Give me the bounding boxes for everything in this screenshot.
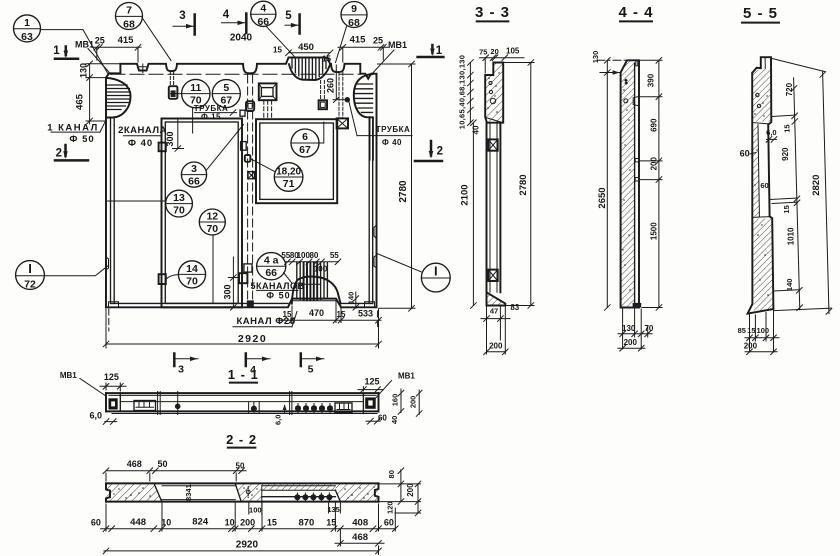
svg-text:2780: 2780 (398, 180, 409, 203)
svg-text:55: 55 (330, 251, 339, 260)
svg-text:130: 130 (591, 51, 600, 64)
svg-text:68: 68 (348, 17, 360, 29)
svg-text:Ф 15: Ф 15 (201, 113, 221, 122)
svg-text:200: 200 (489, 342, 503, 351)
svg-text:2920: 2920 (236, 540, 259, 551)
svg-text:15: 15 (322, 55, 331, 64)
svg-text:100: 100 (314, 265, 328, 274)
svg-text:140: 140 (785, 279, 794, 292)
svg-text:60: 60 (91, 517, 101, 527)
svg-text:15: 15 (337, 310, 346, 319)
svg-text:15: 15 (283, 310, 292, 319)
svg-text:11: 11 (190, 82, 201, 94)
svg-text:Ф 50: Ф 50 (266, 291, 290, 301)
svg-text:8341: 8341 (184, 484, 193, 501)
svg-text:6,0: 6,0 (90, 411, 103, 421)
svg-text:468: 468 (352, 532, 368, 543)
svg-text:533: 533 (358, 309, 373, 319)
svg-text:130: 130 (622, 324, 636, 333)
svg-text:5: 5 (223, 82, 229, 94)
svg-text:5: 5 (285, 10, 292, 22)
svg-text:50: 50 (157, 459, 167, 469)
svg-text:66: 66 (265, 267, 277, 279)
svg-text:3 - 3: 3 - 3 (475, 4, 510, 21)
svg-text:50: 50 (236, 461, 245, 470)
svg-text:МВ1: МВ1 (398, 372, 415, 381)
svg-text:72: 72 (24, 278, 36, 290)
svg-text:70: 70 (190, 94, 202, 106)
svg-text:448: 448 (130, 517, 146, 528)
svg-text:5: 5 (308, 364, 314, 376)
svg-text:125: 125 (104, 372, 119, 382)
svg-text:2: 2 (437, 145, 443, 157)
svg-text:200: 200 (240, 517, 255, 527)
svg-text:105: 105 (506, 47, 520, 56)
svg-text:470: 470 (309, 308, 324, 318)
svg-text:15: 15 (782, 205, 791, 213)
svg-text:2100: 2100 (460, 184, 471, 205)
svg-text:80: 80 (309, 251, 318, 260)
svg-text:60: 60 (760, 181, 768, 190)
svg-text:140: 140 (347, 292, 356, 305)
svg-text:690: 690 (650, 118, 659, 132)
svg-text:20: 20 (490, 47, 498, 56)
svg-text:120: 120 (386, 501, 395, 514)
svg-text:200: 200 (406, 483, 415, 497)
svg-text:70: 70 (173, 205, 185, 217)
svg-text:12: 12 (206, 210, 218, 222)
svg-text:10: 10 (225, 517, 235, 527)
svg-text:100: 100 (249, 505, 262, 514)
svg-text:75: 75 (479, 47, 487, 56)
svg-text:3: 3 (179, 10, 185, 22)
svg-text:100: 100 (297, 251, 311, 260)
svg-text:10,65,40,68,130,130: 10,65,40,68,130,130 (458, 55, 467, 130)
svg-text:Ф 50: Ф 50 (69, 134, 94, 145)
svg-text:5 - 5: 5 - 5 (743, 5, 778, 22)
svg-text:4: 4 (260, 2, 266, 14)
svg-text:1 - 1: 1 - 1 (228, 367, 259, 382)
svg-text:85: 85 (738, 326, 746, 335)
svg-text:I: I (28, 261, 32, 276)
svg-text:4: 4 (223, 9, 230, 21)
svg-text:10: 10 (161, 517, 171, 527)
svg-text:70: 70 (644, 324, 653, 333)
svg-text:3: 3 (191, 163, 197, 175)
svg-text:4 - 4: 4 - 4 (618, 4, 653, 21)
svg-text:468: 468 (127, 459, 142, 469)
svg-text:6: 6 (302, 131, 308, 143)
svg-text:5КАНАЛОВ: 5КАНАЛОВ (251, 281, 305, 291)
svg-text:9: 9 (351, 3, 357, 15)
svg-text:15: 15 (326, 517, 336, 527)
svg-text:15: 15 (783, 124, 792, 132)
svg-text:2 - 2: 2 - 2 (226, 432, 257, 447)
svg-text:68: 68 (123, 18, 135, 30)
svg-text:ТРУБКА: ТРУБКА (376, 125, 411, 134)
svg-text:63: 63 (21, 31, 33, 43)
svg-text:МВ1: МВ1 (388, 40, 407, 50)
svg-text:390: 390 (647, 73, 656, 87)
svg-text:2780: 2780 (518, 174, 529, 195)
svg-text:125: 125 (364, 377, 379, 387)
svg-text:70: 70 (206, 223, 218, 235)
svg-text:135: 135 (327, 505, 340, 514)
svg-text:2: 2 (56, 147, 62, 159)
svg-text:66: 66 (257, 16, 269, 28)
svg-text:15: 15 (267, 517, 277, 527)
svg-text:60: 60 (384, 517, 394, 527)
svg-text:1010: 1010 (786, 227, 795, 245)
svg-text:870: 870 (298, 517, 314, 528)
svg-text:80: 80 (387, 470, 396, 478)
svg-text:14: 14 (186, 263, 198, 275)
svg-text:6,0: 6,0 (274, 415, 283, 425)
svg-text:6,0: 6,0 (766, 128, 776, 137)
svg-text:2040: 2040 (230, 33, 253, 44)
svg-text:100: 100 (757, 326, 770, 335)
svg-text:1500: 1500 (650, 222, 659, 240)
svg-text:60: 60 (740, 149, 750, 159)
svg-text:15: 15 (273, 46, 282, 55)
svg-text:408: 408 (352, 517, 368, 528)
svg-text:2920: 2920 (238, 333, 267, 345)
svg-text:66: 66 (188, 176, 200, 188)
svg-text:70: 70 (186, 275, 198, 287)
svg-text:824: 824 (192, 516, 209, 527)
svg-text:40: 40 (390, 416, 399, 424)
svg-text:200: 200 (408, 396, 417, 409)
svg-text:47: 47 (490, 307, 498, 316)
svg-text:450: 450 (298, 42, 314, 53)
svg-text:200: 200 (650, 156, 659, 170)
svg-text:160: 160 (390, 394, 399, 407)
svg-text:4 а: 4 а (264, 255, 279, 267)
svg-text:18,20: 18,20 (276, 166, 301, 177)
svg-text:25: 25 (95, 36, 105, 46)
svg-text:415: 415 (350, 34, 367, 45)
svg-text:71: 71 (283, 178, 295, 190)
svg-text:25: 25 (373, 35, 383, 45)
svg-text:1: 1 (53, 45, 60, 57)
svg-text:465: 465 (75, 93, 86, 110)
svg-text:200: 200 (744, 341, 758, 350)
svg-text:1: 1 (24, 17, 30, 29)
svg-text:83: 83 (510, 303, 519, 312)
svg-text:2КАНАЛА: 2КАНАЛА (118, 125, 167, 136)
svg-text:1: 1 (436, 45, 443, 57)
svg-text:3: 3 (178, 364, 184, 376)
svg-text:920: 920 (781, 147, 790, 161)
svg-text:15: 15 (747, 326, 755, 335)
svg-text:13: 13 (173, 192, 185, 204)
svg-text:130: 130 (79, 63, 89, 78)
svg-text:300: 300 (223, 284, 233, 299)
svg-text:7: 7 (126, 4, 132, 16)
svg-text:720: 720 (785, 82, 794, 96)
svg-text:Ф 40: Ф 40 (128, 138, 153, 149)
svg-text:67: 67 (299, 144, 311, 156)
svg-text:260: 260 (326, 78, 336, 93)
svg-text:I: I (434, 264, 438, 279)
svg-text:Ф 40: Ф 40 (382, 138, 402, 147)
svg-text:415: 415 (118, 35, 135, 46)
svg-text:2650: 2650 (597, 187, 608, 208)
svg-text:МВ1: МВ1 (60, 371, 77, 380)
svg-text:2820: 2820 (811, 175, 822, 196)
svg-text:67: 67 (220, 94, 232, 106)
